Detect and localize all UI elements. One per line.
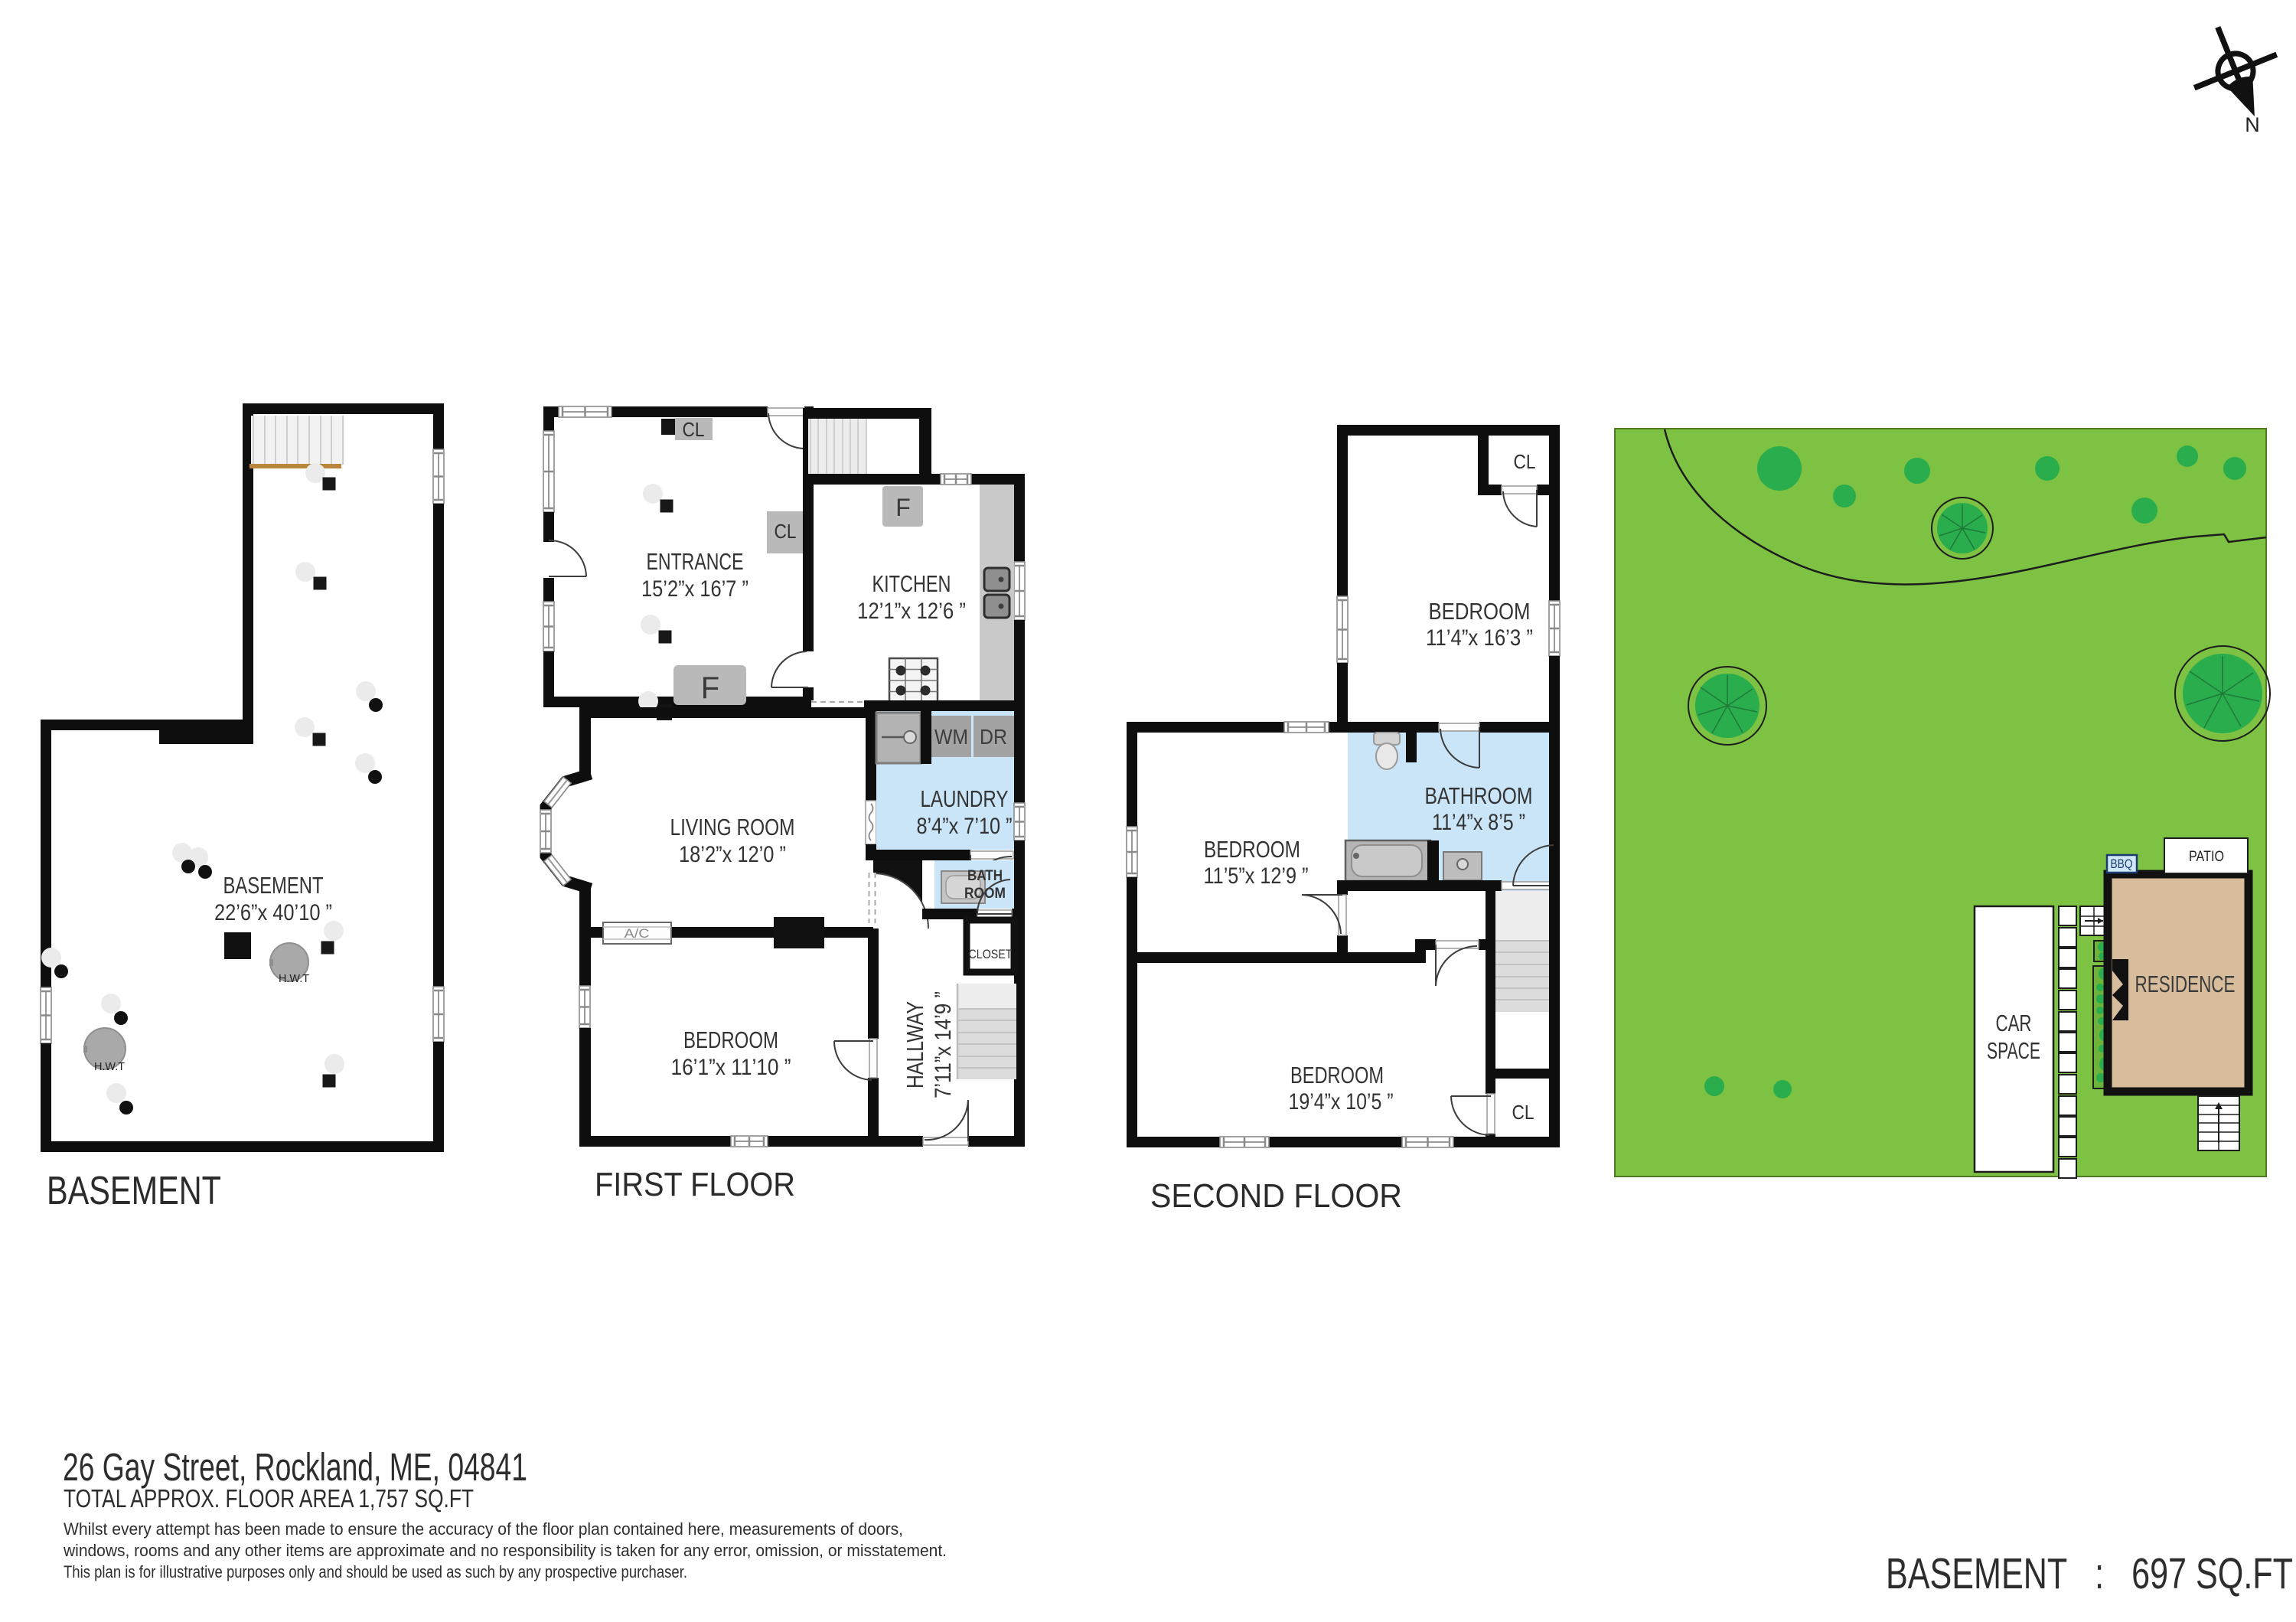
svg-text:WM: WM xyxy=(934,725,968,749)
svg-text:BATHROOM: BATHROOM xyxy=(1425,782,1533,809)
svg-text:KITCHEN: KITCHEN xyxy=(872,570,951,597)
svg-text:A/C: A/C xyxy=(625,926,650,941)
svg-text:BEDROOM: BEDROOM xyxy=(1290,1062,1384,1088)
svg-text:BASEMENT : 697 SQ.FT: BASEMENT : 697 SQ.FT xyxy=(1886,1549,2293,1598)
svg-text:BEDROOM: BEDROOM xyxy=(1429,598,1531,625)
svg-text:11’4”x 16’3 ”: 11’4”x 16’3 ” xyxy=(1426,625,1533,651)
svg-text:DR: DR xyxy=(980,725,1007,749)
svg-text:SECOND FLOOR: SECOND FLOOR xyxy=(1150,1177,1402,1215)
svg-text:Whilst every attempt has been: Whilst every attempt has been made to en… xyxy=(64,1519,903,1539)
svg-text:BEDROOM: BEDROOM xyxy=(1204,836,1300,863)
svg-text:CL: CL xyxy=(1514,450,1536,473)
svg-text:15’2”x 16’7 ”: 15’2”x 16’7 ” xyxy=(641,576,748,602)
svg-text:CAR: CAR xyxy=(1996,1010,2032,1036)
svg-text:HALLWAY: HALLWAY xyxy=(902,1001,928,1088)
svg-text:7’11”x 14’9 ”: 7’11”x 14’9 ” xyxy=(931,991,956,1098)
svg-text:windows, rooms and any other i: windows, rooms and any other items are a… xyxy=(63,1541,947,1560)
svg-text:CLOSET: CLOSET xyxy=(969,947,1013,961)
svg-text:BATH: BATH xyxy=(967,868,1003,884)
svg-text:CL: CL xyxy=(1512,1101,1534,1124)
svg-text:LAUNDRY: LAUNDRY xyxy=(921,785,1009,812)
svg-text:18’2”x 12’0 ”: 18’2”x 12’0 ” xyxy=(679,842,786,867)
svg-text:22’6”x 40’10 ”: 22’6”x 40’10 ” xyxy=(214,900,332,925)
svg-text:ENTRANCE: ENTRANCE xyxy=(647,548,744,575)
svg-text:BASEMENT: BASEMENT xyxy=(47,1169,221,1213)
svg-text:RESIDENCE: RESIDENCE xyxy=(2135,971,2236,997)
svg-text:8’4”x 7’10 ”: 8’4”x 7’10 ” xyxy=(917,814,1013,839)
svg-text:BASEMENT: BASEMENT xyxy=(223,872,324,899)
svg-text:F: F xyxy=(895,494,911,521)
svg-text:N: N xyxy=(2245,113,2260,136)
svg-text:BBQ: BBQ xyxy=(2111,857,2133,871)
svg-text:11’5”x 12’9 ”: 11’5”x 12’9 ” xyxy=(1204,863,1309,889)
svg-text:11’4”x 8’5 ”: 11’4”x 8’5 ” xyxy=(1432,810,1525,835)
svg-text:TOTAL APPROX. FLOOR AREA 1,757: TOTAL APPROX. FLOOR AREA 1,757 SQ.FT xyxy=(64,1484,474,1513)
svg-text:H.W.T: H.W.T xyxy=(279,972,309,985)
svg-text:BEDROOM: BEDROOM xyxy=(683,1026,778,1053)
svg-text:ROOM: ROOM xyxy=(964,886,1006,902)
svg-text:19’4”x 10’5 ”: 19’4”x 10’5 ” xyxy=(1289,1089,1394,1115)
svg-text:FIRST FLOOR: FIRST FLOOR xyxy=(595,1166,795,1203)
svg-text:12’1”x 12’6 ”: 12’1”x 12’6 ” xyxy=(857,599,966,624)
svg-text:H.W.T: H.W.T xyxy=(94,1060,125,1073)
svg-text:16’1”x 11’10 ”: 16’1”x 11’10 ” xyxy=(671,1055,791,1080)
svg-text:26 Gay Street, Rockland, ME, 0: 26 Gay Street, Rockland, ME, 04841 xyxy=(63,1445,527,1489)
svg-text:CL: CL xyxy=(775,520,797,543)
svg-text:SPACE: SPACE xyxy=(1987,1037,2040,1064)
svg-text:LIVING ROOM: LIVING ROOM xyxy=(670,814,795,840)
svg-text:This plan is for illustrative: This plan is for illustrative purposes o… xyxy=(64,1562,687,1581)
svg-text:PATIO: PATIO xyxy=(2189,849,2224,865)
svg-text:F: F xyxy=(701,671,719,705)
svg-text:CL: CL xyxy=(683,418,705,441)
